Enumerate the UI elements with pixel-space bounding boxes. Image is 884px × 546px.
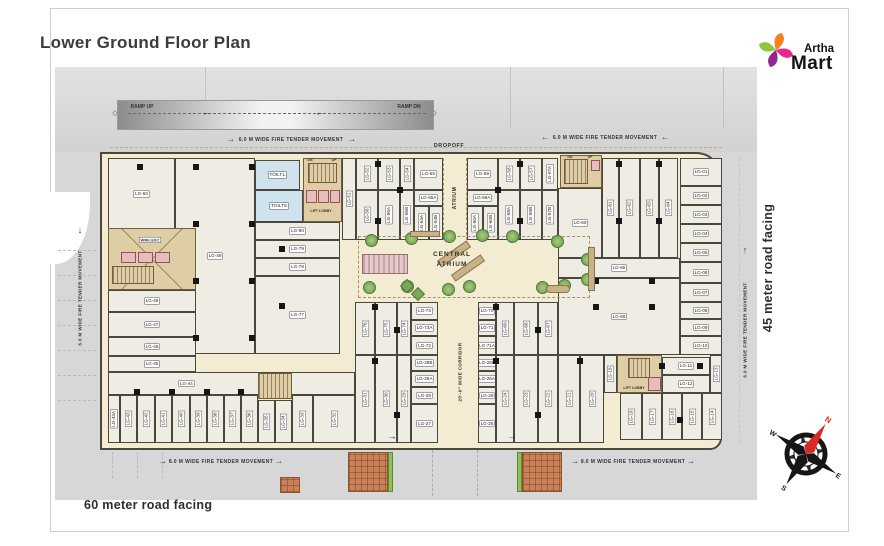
unit-label: LG-46 [145, 344, 160, 350]
road-label-bottom: 60 meter road facing [84, 498, 212, 512]
unit-label: LG-05 [694, 250, 709, 256]
unit-LG-23: LG-23 [514, 355, 538, 443]
unit-label: LG-47 [145, 322, 160, 328]
plan-line [110, 147, 722, 148]
unit-LG-42: LG-42 [137, 395, 155, 443]
unit-label: LG-43A [111, 410, 117, 428]
unit-label: LG-21 [566, 392, 572, 407]
unit-label: LG-29 [401, 392, 407, 407]
unit-LG-73A: LG-73A [411, 320, 438, 336]
bench [588, 247, 595, 291]
tree-icon [365, 234, 378, 247]
unit-LG-47: LG-47 [108, 312, 196, 337]
unit-label: LG-26A [478, 376, 496, 382]
unit-LG-41: LG-41 [155, 395, 172, 443]
brick-entry-steps [522, 452, 562, 492]
unit-LG-71: LG-71 [478, 320, 496, 336]
annotation-text: ↓ [78, 225, 83, 235]
unit-label: LG-01 [694, 169, 709, 175]
plan-line [58, 350, 96, 351]
unit-label: LG-25 [480, 421, 495, 427]
unit-LG-38: LG-38 [207, 395, 224, 443]
unit-label: LG-22 [545, 392, 551, 407]
annotation-text: 20'-0" WIDE CORRIDOR [458, 343, 463, 402]
compass-w: W [768, 429, 778, 439]
plan-line [58, 400, 96, 401]
unit-LG-45: LG-45 [108, 356, 196, 372]
unit-label: LG-58B [528, 206, 534, 224]
unit-label: LG-57A [547, 165, 553, 183]
stair-core [564, 159, 588, 184]
column-dot [656, 161, 662, 167]
green-planter-strip [388, 452, 393, 492]
annotation-text: → [159, 457, 167, 466]
annotation-text: ← [315, 108, 325, 119]
unit-LG-29: LG-29 [397, 355, 411, 443]
annotation-text: LIFT LOBBY [310, 209, 331, 213]
unit-label: LG-79 [290, 246, 305, 252]
unit-LG-10: LG-10 [680, 336, 722, 355]
column-dot [493, 304, 499, 310]
unit-label: LG-13 [713, 367, 719, 382]
unit-label: LG-54B [433, 214, 439, 232]
unit-label: LG-59A [474, 195, 492, 201]
unit-label: LG-56A [386, 206, 392, 224]
unit-LG-54: LG-54 [400, 158, 414, 190]
stair-core [628, 358, 650, 378]
annotation-text: → [275, 457, 283, 466]
unit-label: LG-57 [528, 167, 534, 182]
unit-LG-48: LG-48 [108, 290, 196, 312]
unit-label: LG-11 [679, 363, 693, 369]
stair-core [258, 373, 292, 399]
unit-label: LG-52 [364, 167, 370, 182]
unit-LG-02: LG-02 [680, 186, 722, 205]
unit-LG-36: LG-36 [241, 395, 258, 443]
unit-label: LG-17 [649, 409, 655, 424]
unit-LG-55A: LG-55A [414, 190, 443, 206]
annotation-text: → [227, 135, 235, 144]
unit-label: LG-51 [346, 192, 352, 207]
column-dot [249, 278, 255, 284]
unit-label: LG-34 [281, 414, 287, 429]
compass-e: E [834, 472, 842, 481]
unit-LG-08: LG-08 [680, 302, 722, 319]
annotation-text: ◇ [431, 109, 436, 117]
brick-entry-steps [280, 477, 300, 493]
annotation-text: DN [568, 155, 573, 159]
unit-label: LG-67 [545, 321, 551, 336]
compass-rose-icon: N E S W [764, 408, 848, 498]
unit-label: LG-68 [523, 321, 529, 336]
plan-line [432, 450, 433, 496]
unit-label: LG-40 [178, 412, 184, 427]
column-dot [204, 389, 210, 395]
annotation-text: WRK.EXC [140, 238, 161, 243]
unit-LG-28: LG-28 [411, 387, 438, 404]
tree-icon [463, 280, 476, 293]
unit-label: LG-10 [694, 343, 709, 349]
unit-label: LG-66 [612, 314, 627, 320]
unit-LG-31: LG-31 [355, 355, 375, 443]
annotation-text: → [571, 457, 579, 466]
unit-label: LG-60 [573, 220, 588, 226]
unit-LG-73: LG-73 [411, 302, 438, 320]
unit-label: LG-65 [612, 265, 627, 271]
lift-cell [138, 252, 153, 263]
annotation-text: ◇ [112, 109, 117, 117]
unit-label: LG-23 [523, 392, 529, 407]
unit-label: LG-26 [480, 393, 495, 399]
unit-label: LG-19 [608, 367, 614, 382]
column-dot [279, 303, 285, 309]
unit-label: LG-15 [689, 409, 695, 424]
column-dot [134, 389, 140, 395]
tree-icon [506, 230, 519, 243]
unit-LG-21: LG-21 [558, 355, 580, 443]
unit-label: LG-54 [404, 167, 410, 182]
tree-icon [443, 230, 456, 243]
unit-LG-01: LG-01 [680, 158, 722, 186]
unit-LG-24: LG-24 [496, 355, 514, 443]
column-dot [249, 164, 255, 170]
lift-cell [330, 190, 340, 203]
unit-LG-18: LG-18 [620, 393, 642, 440]
unit-TOILT.L: TOILT.L [255, 160, 300, 190]
column-dot [372, 304, 378, 310]
unit-LG-09: LG-09 [680, 319, 722, 336]
unit-label: LG-60B [488, 214, 494, 232]
annotation-text: ATRIUM [452, 187, 458, 210]
unit-label: LG-44 [179, 381, 194, 387]
unit-label: LG-61 [608, 201, 614, 216]
page-title: Lower Ground Floor Plan [40, 33, 251, 53]
unit-LG-32: LG-32 [313, 395, 355, 443]
brand-logo: Artha Mart [757, 30, 857, 82]
unit-label: LG-09 [694, 325, 709, 331]
bench [410, 231, 440, 237]
unit-label: LG-28 [417, 393, 432, 399]
unit-label: LG-58 [506, 167, 512, 182]
brick-entry-steps [348, 452, 388, 492]
annotation-text: ← [541, 133, 549, 142]
annotation-text: ← [661, 133, 669, 142]
compass-n: N [823, 415, 833, 426]
lift-cell [591, 160, 600, 171]
column-dot [649, 278, 655, 284]
unit-label: LG-36 [247, 412, 253, 427]
unit-LG-56: LG-56 [356, 190, 378, 240]
unit-LG-72: LG-72 [411, 336, 438, 355]
unit-label: LG-57B [547, 206, 553, 224]
plan-line [58, 375, 96, 376]
unit-LG-80: LG-80 [255, 222, 340, 240]
unit-label: LG-32 [331, 412, 337, 427]
tree-icon [551, 235, 564, 248]
unit-LG-63: LG-63 [640, 158, 659, 258]
unit-LG-62: LG-62 [619, 158, 640, 258]
unit-LG-57: LG-57 [520, 158, 542, 190]
annotation-text: 6.0 M WIDE FIRE TENDER MOVEMENT [743, 282, 748, 377]
logo-text-mart: Mart [791, 53, 833, 75]
unit-label: LG-54A [419, 214, 425, 232]
tree-icon [476, 229, 489, 242]
unit-LG-15: LG-15 [682, 393, 702, 440]
unit-label: LG-48 [145, 298, 160, 304]
unit-label: LG-53 [386, 167, 392, 182]
unit-LG-78: LG-78 [255, 258, 340, 276]
unit-label: LG-49 [208, 253, 223, 259]
annotation-text: → [348, 135, 356, 144]
stair-core [112, 266, 154, 284]
unit-LG-77: LG-77 [255, 276, 340, 354]
plan-layer: LG-50LG-49TOILT.LTOILTSLG-80LG-79LG-78LG… [0, 0, 884, 546]
annotation-text: → [507, 432, 517, 443]
unit-label: LG-35 [264, 414, 270, 429]
column-dot [535, 412, 541, 418]
unit-LG-06: LG-06 [680, 262, 722, 283]
unit-label: LG-63 [647, 201, 653, 216]
unit-label: LG-02 [694, 193, 709, 199]
unit-label: LG-76 [362, 321, 368, 336]
column-dot [495, 187, 501, 193]
compass-s: S [780, 485, 788, 494]
column-dot [249, 221, 255, 227]
lift-cell [121, 252, 136, 263]
unit-label: LG-20 [589, 392, 595, 407]
unit-label: LG-04 [694, 231, 709, 237]
unit-label: LG-74 [401, 321, 407, 336]
unit-LG-43A: LG-43A [108, 395, 120, 443]
column-dot [193, 335, 199, 341]
plan-line [466, 158, 467, 240]
unit-label: LG-69 [502, 321, 508, 336]
floor-plan-page: LG-50LG-49TOILT.LTOILTSLG-80LG-79LG-78LG… [0, 0, 884, 546]
unit-label: LG-75 [383, 321, 389, 336]
column-dot [517, 218, 523, 224]
unit-label: LG-33 [300, 412, 306, 427]
column-dot [193, 278, 199, 284]
annotation-text: UP [332, 158, 337, 162]
unit-label: LG-28B [416, 360, 434, 366]
column-dot [616, 218, 622, 224]
unit-label: TOILT.L [269, 172, 287, 178]
annotation-text: ← [202, 108, 212, 119]
unit-label: LG-58A [506, 206, 512, 224]
unit-label: LG-18 [628, 409, 634, 424]
unit-LG-22: LG-22 [538, 355, 558, 443]
unit-label: LG-73 [417, 308, 432, 314]
column-dot [372, 358, 378, 364]
unit-label: LG-28A [416, 376, 434, 382]
unit-label: LG-42 [143, 412, 149, 427]
unit-LG-59A: LG-59A [467, 190, 498, 206]
unit-label: LG-60A [472, 214, 478, 232]
unit-LG-20: LG-20 [580, 355, 604, 443]
unit-LG-51: LG-51 [342, 158, 356, 240]
central-atrium-label: CENTRAL ATRIUM [420, 250, 484, 270]
annotation-text: LIFT LOBBY [623, 386, 644, 390]
plan-line [205, 67, 206, 100]
column-dot [659, 363, 665, 369]
plan-line [128, 113, 426, 114]
unit-label: LG-14 [709, 409, 715, 424]
unit-label: TOILTS [270, 203, 288, 209]
annotation-text: → [387, 432, 397, 443]
unit-label: LG-78 [290, 264, 305, 270]
unit-LG-58B: LG-58B [520, 190, 542, 240]
column-dot [697, 363, 703, 369]
column-dot [137, 164, 143, 170]
unit-label: LG-59 [475, 171, 490, 177]
plan-line [723, 67, 724, 128]
unit-label: LG-37 [230, 412, 236, 427]
unit-LG-64: LG-64 [659, 158, 678, 258]
unit-LG-26: LG-26 [478, 387, 496, 404]
unit-label: LG-41 [161, 412, 167, 427]
annotation-text: RAMP DN [397, 104, 420, 110]
unit-label: LG-43 [126, 412, 132, 427]
unit-LG-35: LG-35 [258, 400, 275, 443]
column-dot [517, 161, 523, 167]
annotation-text: DN [308, 158, 313, 162]
column-dot [577, 358, 583, 364]
column-dot [616, 161, 622, 167]
unit-LG-61: LG-61 [602, 158, 619, 258]
unit-LG-46: LG-46 [108, 337, 196, 356]
unit-LG-19: LG-19 [604, 355, 617, 393]
unit-label: LG-03 [694, 212, 709, 218]
unit-label: LG-45 [145, 361, 160, 367]
tree-icon [442, 283, 455, 296]
tree-icon [363, 281, 376, 294]
unit-label: LG-80 [290, 228, 305, 234]
unit-LG-13: LG-13 [710, 355, 722, 393]
annotation-text: → [687, 457, 695, 466]
unit-LG-28A: LG-28A [411, 371, 438, 387]
unit-label: LG-71A [478, 343, 496, 349]
annotation-text: 8.0 M WIDE FIRE TENDER MOVEMENT [169, 459, 273, 465]
unit-LG-79: LG-79 [255, 240, 340, 258]
unit-label: LG-38 [213, 412, 219, 427]
unit-label: LG-64 [666, 201, 672, 216]
column-dot [238, 389, 244, 395]
unit-LG-05: LG-05 [680, 243, 722, 262]
column-dot [193, 221, 199, 227]
column-dot [394, 327, 400, 333]
annotation-text: RAMP UP [131, 104, 154, 110]
green-planter-strip [517, 452, 522, 492]
unit-LG-26A: LG-26A [478, 371, 496, 387]
unit-LG-55: LG-55 [414, 158, 443, 190]
unit-LG-14: LG-14 [702, 393, 722, 440]
stair-core [308, 163, 337, 183]
annotation-text: 6.0 M WIDE FIRE TENDER MOVEMENT [239, 137, 343, 143]
unit-LG-37: LG-37 [224, 395, 241, 443]
unit-LG-25: LG-25 [478, 404, 496, 443]
column-dot [193, 164, 199, 170]
annotation-text: DROPOFF [434, 143, 464, 149]
column-dot [169, 389, 175, 395]
unit-label: LG-73A [416, 325, 434, 331]
unit-LG-43: LG-43 [120, 395, 137, 443]
unit-label: LG-77 [290, 312, 305, 318]
column-dot [535, 327, 541, 333]
unit-LG-56A: LG-56A [378, 190, 400, 240]
unit-LG-53: LG-53 [378, 158, 400, 190]
unit-LG-57A: LG-57A [542, 158, 558, 190]
unit-label: LG-24 [502, 392, 508, 407]
column-dot [397, 187, 403, 193]
unit-label: LG-07 [694, 290, 709, 296]
unit-LG-17: LG-17 [642, 393, 662, 440]
unit-label: LG-08 [694, 308, 709, 314]
plan-line [112, 452, 113, 478]
unit-LG-03: LG-03 [680, 205, 722, 224]
column-dot [394, 412, 400, 418]
unit-label: LG-55 [421, 171, 436, 177]
column-dot [593, 304, 599, 310]
unit-LG-34: LG-34 [275, 400, 292, 443]
road-label-right: 45 meter road facing [761, 204, 775, 332]
bench [546, 285, 570, 293]
plan-line [137, 452, 138, 478]
lift-cell [648, 377, 661, 391]
unit-LG-12: LG-12 [662, 375, 710, 393]
column-dot [493, 358, 499, 364]
unit-label: LG-71 [480, 325, 495, 331]
plan-line [739, 158, 740, 443]
column-dot [249, 335, 255, 341]
logo-star-icon [757, 30, 795, 70]
unit-LG-30: LG-30 [375, 355, 397, 443]
unit-label: LG-55A [420, 195, 438, 201]
unit-TOILTS: TOILTS [255, 190, 303, 222]
unit-LG-67: LG-67 [538, 302, 558, 355]
column-dot [656, 218, 662, 224]
unit-label: LG-56B [404, 206, 410, 224]
column-dot [649, 304, 655, 310]
unit-LG-04: LG-04 [680, 224, 722, 243]
lift-cell [155, 252, 170, 263]
lift-cell [306, 190, 317, 203]
annotation-text: 6.0 M WIDE FIRE TENDER MOVEMENT [553, 135, 657, 141]
unit-label: LG-16 [669, 409, 675, 424]
unit-LG-59: LG-59 [467, 158, 498, 190]
unit-label: LG-31 [362, 392, 368, 407]
unit-label: LG-27 [417, 421, 432, 427]
unit-label: LG-30 [383, 392, 389, 407]
unit-LG-40: LG-40 [172, 395, 190, 443]
unit-label: LG-72 [417, 343, 432, 349]
annotation-text: UP [588, 155, 593, 159]
annotation-text: ↑ [743, 245, 748, 255]
annotation-text: 8.0 M WIDE FIRE TENDER MOVEMENT [581, 459, 685, 465]
unit-LG-33: LG-33 [292, 395, 313, 443]
unit-LG-44: LG-44 [108, 372, 355, 395]
lift-cell [318, 190, 329, 203]
plan-line [477, 450, 478, 496]
column-dot [375, 218, 381, 224]
unit-LG-39: LG-39 [190, 395, 207, 443]
unit-LG-07: LG-07 [680, 283, 722, 302]
unit-label: LG-62 [627, 201, 633, 216]
column-dot [279, 246, 285, 252]
unit-label: LG-39 [196, 412, 202, 427]
annotation-text: 6.0 M WIDE FIRE TENDER MOVEMENT [78, 250, 83, 345]
unit-label: LG-12 [679, 381, 694, 387]
unit-LG-71A: LG-71A [478, 336, 496, 355]
